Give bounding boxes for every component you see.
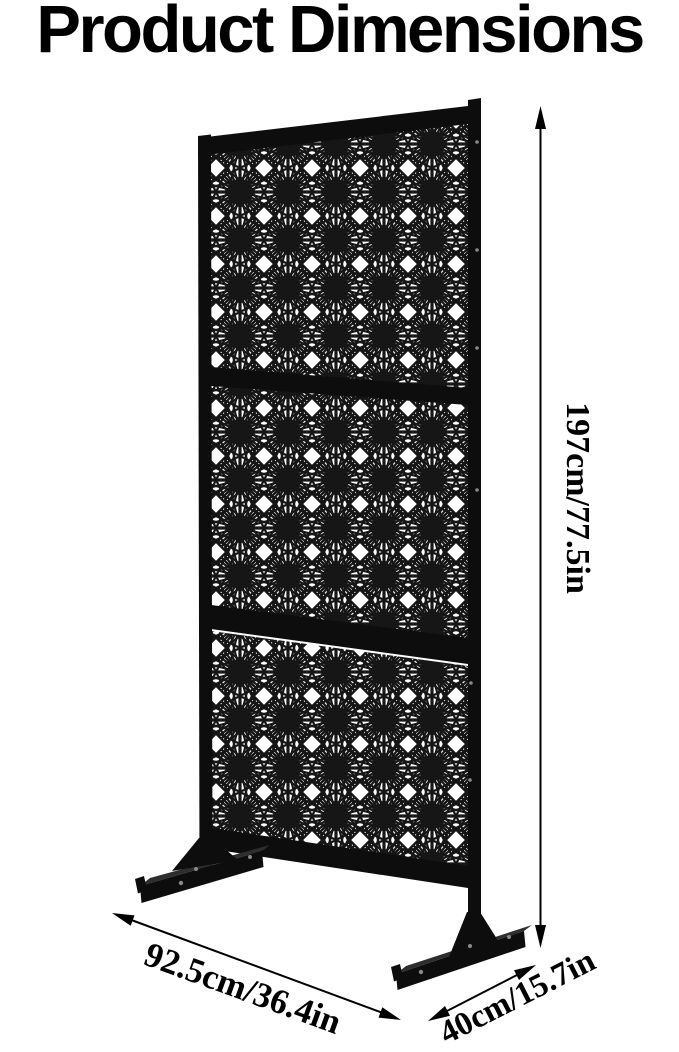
left-post [198, 135, 213, 875]
right-post [468, 98, 481, 954]
arrow-down-icon [535, 925, 546, 948]
height-dimension: 197cm/77.5in [535, 106, 596, 948]
arrow-down-right-icon [379, 1007, 402, 1020]
height-dimension-label: 197cm/77.5in [559, 402, 596, 594]
width-dimension: 92.5cm/36.4in [112, 913, 401, 1042]
product-illustration: 197cm/77.5in 92.5cm/36.4in 40cm/15.7in [0, 0, 679, 1052]
screen-panel-middle [211, 384, 468, 640]
screen-panel-top [211, 122, 468, 390]
privacy-screen [135, 98, 532, 990]
screen-panel-bottom [211, 631, 468, 868]
product-dimensions-page: Product Dimensions [0, 0, 679, 1052]
arrow-up-icon [535, 106, 546, 129]
arrow-up-left-icon [112, 913, 135, 926]
